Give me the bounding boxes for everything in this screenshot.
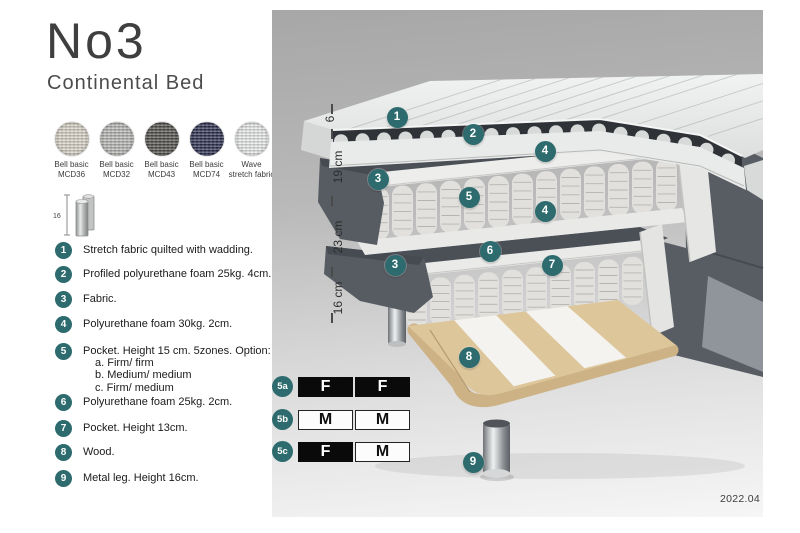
dimension-label: 19 cm — [331, 151, 345, 184]
part-number-badge: 1 — [55, 242, 72, 259]
firmness-option-row: 5c F M — [272, 441, 410, 462]
firmness-option-badge: 5b — [272, 409, 293, 430]
firmness-zone-table: M M — [298, 410, 410, 430]
diagram-callout-7: 7 — [542, 255, 563, 276]
part-description: Stretch fabric quilted with wadding. — [83, 244, 253, 256]
part-number-badge: 5 — [55, 343, 72, 360]
part-description: Wood. — [83, 446, 115, 458]
diagram-callout-2: 2 — [463, 124, 484, 145]
diagram-callout-1: 1 — [387, 107, 408, 128]
part-number-badge: 7 — [55, 420, 72, 437]
firmness-cell: F — [298, 377, 353, 397]
part-description: Polyurethane foam 25kg. 2cm. — [83, 396, 232, 408]
pocket-firmness-options: a. Firm/ firm b. Medium/ medium c. Firm/… — [95, 357, 192, 394]
part-description: Polyurethane foam 30kg. 2cm. — [83, 318, 232, 330]
list-item: 4 Polyurethane foam 30kg. 2cm. — [55, 315, 232, 333]
firmness-cell: M — [355, 442, 410, 462]
list-item: 1 Stretch fabric quilted with wadding. — [55, 241, 253, 259]
firmness-cell: M — [298, 410, 353, 430]
part-number-badge: 3 — [55, 291, 72, 308]
list-item: 3 Fabric. — [55, 290, 117, 308]
part-description: Fabric. — [83, 293, 117, 305]
firmness-option-badge: 5a — [272, 376, 293, 397]
product-sheet: No3 Continental Bed Bell basicMCD36 Bell… — [0, 0, 800, 533]
diagram-callout-6: 6 — [480, 241, 501, 262]
list-item: 7 Pocket. Height 13cm. — [55, 419, 188, 437]
firmness-zone-table: F M — [298, 442, 410, 462]
diagram-overlays: 12435463789 619 cm23 cm16 cm 5a F F 5b M… — [272, 10, 763, 517]
part-description: Pocket. Height 15 cm. 5zones. Option: — [83, 345, 271, 357]
firmness-option-row: 5b M M — [272, 409, 410, 430]
firmness-option-row: 5a F F — [272, 376, 410, 397]
dimension-tick — [331, 313, 333, 323]
firmness-cell: F — [298, 442, 353, 462]
dimension-label: 6 — [323, 116, 337, 123]
firmness-zone-table: F F — [298, 377, 410, 397]
list-item: 6 Polyurethane foam 25kg. 2cm. — [55, 393, 232, 411]
diagram-callout-9: 9 — [463, 452, 484, 473]
dimension-tick — [331, 267, 333, 277]
firmness-cell: F — [355, 377, 410, 397]
part-number-badge: 2 — [55, 266, 72, 283]
diagram-callout-3: 3 — [385, 255, 406, 276]
dimension-label: 16 cm — [331, 282, 345, 315]
parts-list: 1 Stretch fabric quilted with wadding. 2… — [0, 0, 272, 533]
dimension-tick — [331, 104, 333, 114]
part-description: Metal leg. Height 16cm. — [83, 472, 199, 484]
diagram-callout-4: 4 — [535, 201, 556, 222]
part-description: Pocket. Height 13cm. — [83, 422, 188, 434]
diagram-callout-8: 8 — [459, 347, 480, 368]
dimension-label: 23 cm — [331, 221, 345, 254]
part-description: Profiled polyurethane foam 25kg. 4cm. — [83, 268, 271, 280]
diagram-callout-5: 5 — [459, 187, 480, 208]
dimension-tick — [331, 196, 333, 206]
firmness-cell: M — [355, 410, 410, 430]
part-number-badge: 9 — [55, 470, 72, 487]
version-date: 2022.04 — [720, 493, 760, 505]
list-item: 2 Profiled polyurethane foam 25kg. 4cm. — [55, 265, 271, 283]
list-item: 9 Metal leg. Height 16cm. — [55, 469, 199, 487]
list-item: 8 Wood. — [55, 443, 115, 461]
firmness-option-badge: 5c — [272, 441, 293, 462]
part-number-badge: 6 — [55, 394, 72, 411]
diagram-callout-3: 3 — [368, 169, 389, 190]
dimension-tick — [331, 129, 333, 139]
part-number-badge: 8 — [55, 444, 72, 461]
diagram-callout-4: 4 — [535, 141, 556, 162]
part-number-badge: 4 — [55, 316, 72, 333]
